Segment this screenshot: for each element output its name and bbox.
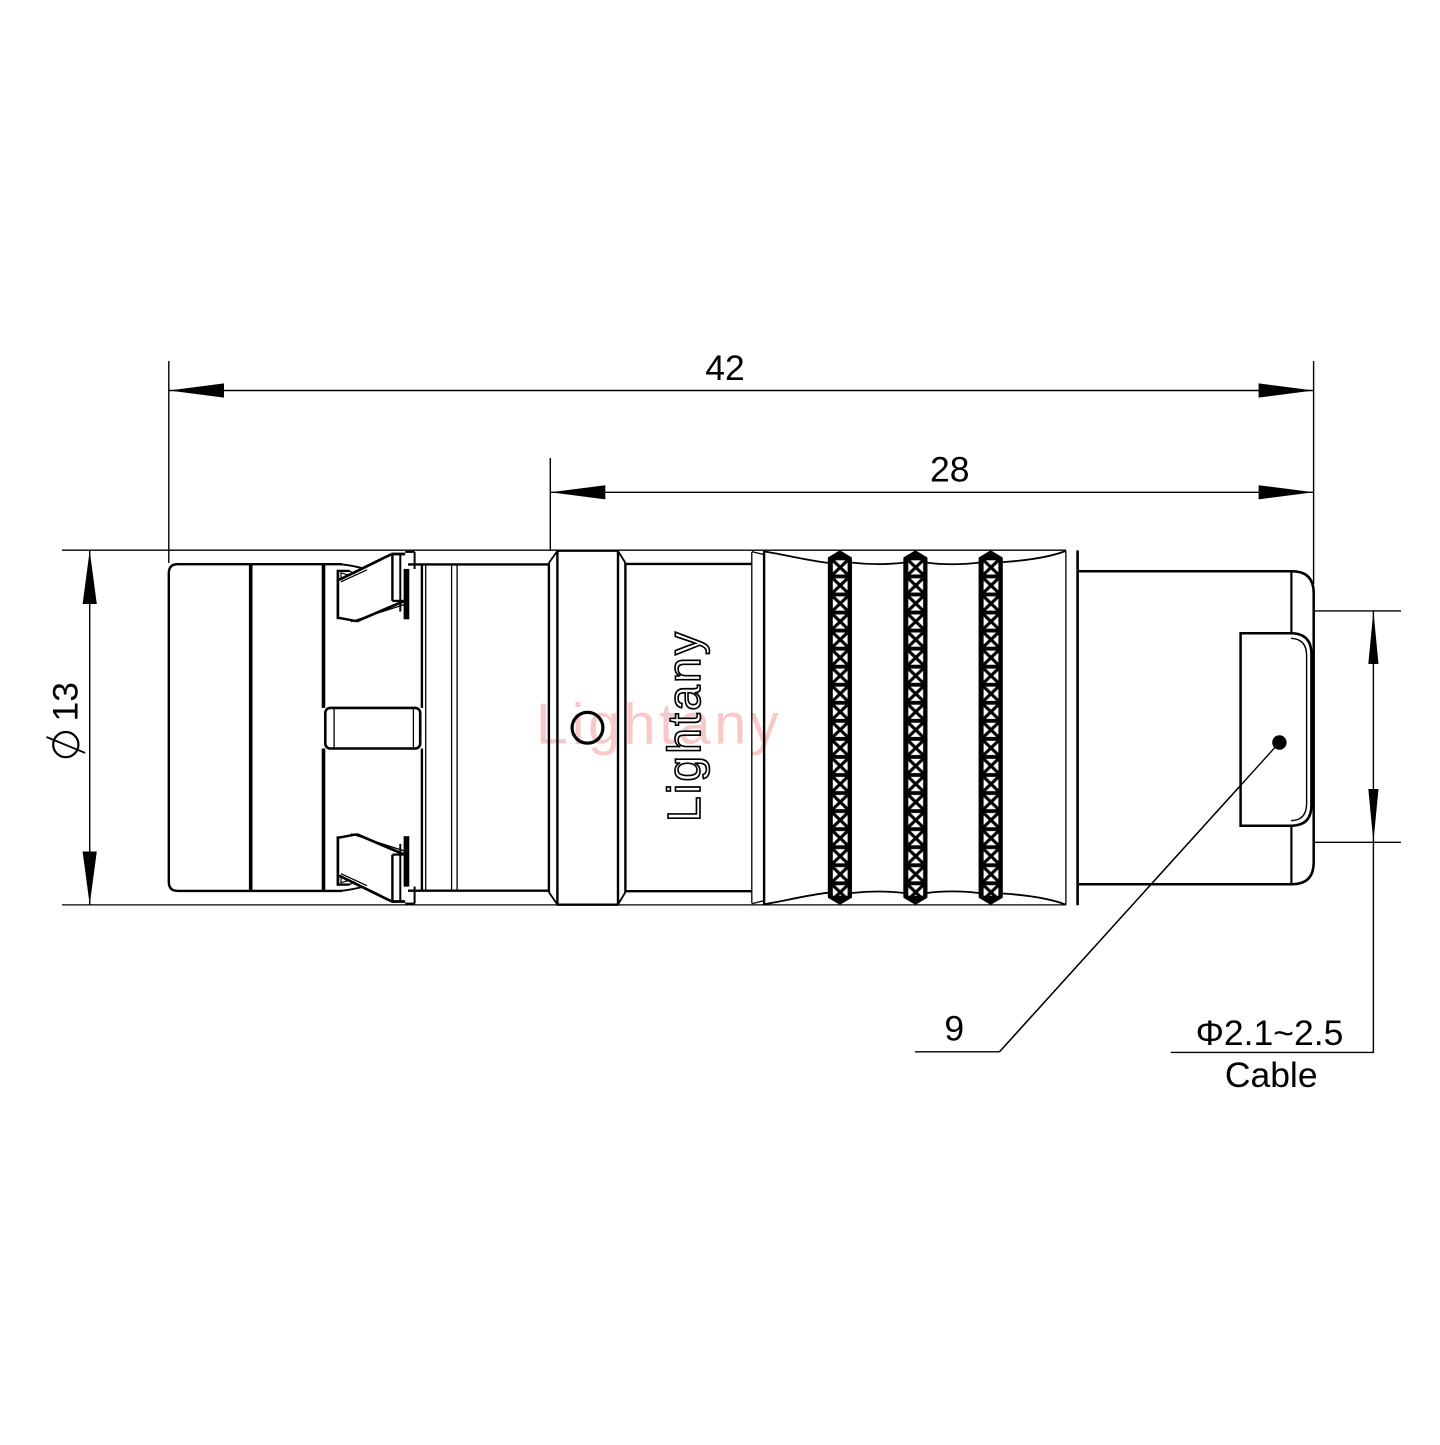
- svg-text:9: 9: [944, 1008, 964, 1048]
- svg-text:Cable: Cable: [1225, 1055, 1318, 1095]
- svg-text:13: 13: [46, 682, 86, 722]
- svg-text:Lightany: Lightany: [658, 630, 710, 822]
- svg-text:42: 42: [705, 348, 745, 388]
- svg-text:28: 28: [930, 450, 970, 490]
- svg-text:Φ2.1~2.5: Φ2.1~2.5: [1196, 1013, 1344, 1053]
